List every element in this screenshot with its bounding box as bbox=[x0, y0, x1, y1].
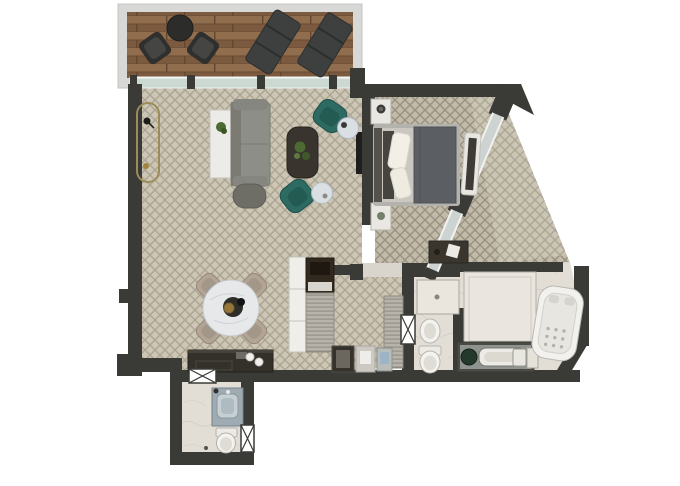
guest-vanity-item bbox=[214, 389, 219, 394]
glass-highlight bbox=[130, 77, 361, 79]
table-dark-bowl bbox=[237, 298, 245, 306]
guest-faucet bbox=[226, 390, 230, 394]
white-wardrobe bbox=[289, 257, 306, 352]
bathroom-north-wall bbox=[453, 262, 563, 272]
balcony-glass-wall bbox=[130, 77, 361, 89]
coffee-table-plant-leaf bbox=[302, 152, 310, 160]
appliance-white-door bbox=[360, 351, 371, 364]
round-side-table-1 bbox=[338, 118, 359, 139]
round-bistro-table bbox=[167, 15, 193, 41]
minibar-cabinet-shelf bbox=[308, 282, 332, 291]
sofa-armrest-top bbox=[233, 99, 268, 110]
console-plant-leaf bbox=[221, 128, 227, 134]
guest-bath-top-door bbox=[189, 369, 216, 383]
guest-bath-right-wall-b bbox=[241, 451, 254, 465]
ottoman bbox=[233, 184, 266, 208]
sofa-backrest bbox=[231, 102, 241, 186]
glass-post-5 bbox=[352, 75, 362, 89]
glass-post-4 bbox=[329, 75, 337, 89]
glass-post-2 bbox=[187, 75, 195, 89]
nightstand-decor-1-inner bbox=[379, 107, 383, 111]
shower-drain bbox=[435, 295, 440, 300]
wc-west-wall-a bbox=[402, 277, 414, 315]
left-wall-nub-2 bbox=[117, 354, 128, 376]
floor-plan-canvas bbox=[0, 0, 680, 486]
glass-band bbox=[130, 77, 361, 88]
wc-door bbox=[401, 315, 415, 344]
minibar-cabinet-inset bbox=[310, 262, 330, 275]
coffee-table bbox=[287, 127, 318, 178]
bedroom-top-wall bbox=[350, 84, 508, 97]
vanity-basket bbox=[513, 349, 526, 366]
left-wall bbox=[128, 84, 142, 376]
round-side-table-2 bbox=[312, 183, 333, 204]
sideboard-cup-1 bbox=[246, 353, 254, 361]
nightstand-decor-2 bbox=[377, 212, 385, 220]
bed-headboard bbox=[374, 128, 382, 202]
guest-floor-drain bbox=[204, 446, 208, 450]
side-table-decor-2 bbox=[323, 194, 328, 199]
console-table bbox=[210, 110, 233, 178]
side-table-decor bbox=[341, 122, 347, 128]
glass-post-3 bbox=[257, 75, 265, 89]
wall-tv bbox=[356, 132, 362, 174]
guest-sink-basin bbox=[221, 398, 234, 414]
guest-bath-left-wall bbox=[170, 368, 182, 465]
coffee-table-plant bbox=[295, 142, 306, 153]
sideboard-top-edge bbox=[188, 350, 273, 353]
appliance-safe-front bbox=[380, 352, 389, 364]
bidet-basin bbox=[424, 323, 436, 339]
sideboard-tray bbox=[236, 352, 247, 359]
walk-in-shower bbox=[464, 272, 536, 346]
console-item-2 bbox=[434, 249, 440, 255]
left-wall-nub-1 bbox=[119, 289, 128, 303]
vessel-sink bbox=[461, 349, 477, 365]
floor-plan-image bbox=[0, 0, 680, 486]
toilet-bowl bbox=[424, 356, 437, 371]
wc-west-wall-b bbox=[402, 344, 414, 370]
passage-threshold bbox=[363, 263, 402, 277]
glass-post-1 bbox=[130, 75, 137, 89]
sideboard-cup-2 bbox=[255, 358, 263, 366]
divider-wall-stub bbox=[350, 264, 363, 280]
minibar-fridge-door bbox=[336, 350, 350, 368]
guest-toilet-bowl bbox=[220, 437, 232, 451]
louvered-closet-1 bbox=[306, 293, 334, 352]
guest-bath-entry-door bbox=[241, 425, 254, 452]
coffee-table-plant-leaf-2 bbox=[294, 153, 300, 159]
desk-decor bbox=[143, 163, 149, 169]
table-gold-bowl bbox=[224, 303, 234, 313]
